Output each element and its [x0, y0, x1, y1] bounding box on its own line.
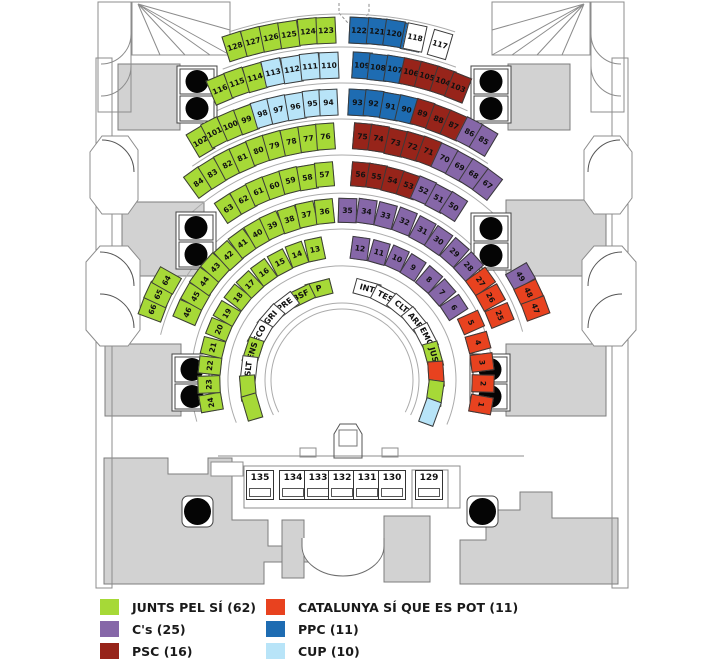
seat-1: 1 [468, 394, 494, 416]
seat-23: 23 [197, 375, 221, 394]
seat-123: 123 [316, 16, 337, 44]
legend-swatch-cs [100, 621, 119, 637]
seat-76: 76 [315, 122, 336, 150]
legend-label: CATALUNYA SÍ QUE ES POT (11) [298, 600, 518, 615]
desk-134: 134 [279, 470, 307, 500]
legend-swatch-psc [100, 643, 119, 659]
legend-item-jxsi: JUNTS PEL SÍ (62) [100, 596, 256, 618]
seat-35: 35 [337, 197, 357, 223]
camera-marker-pair [471, 66, 511, 123]
desk-132: 132 [328, 470, 356, 500]
legend-item-cup: CUP (10) [266, 640, 518, 662]
seat-57: 57 [313, 162, 334, 189]
legend-label: PSC (16) [132, 644, 193, 659]
legend-item-csqep: CATALUNYA SÍ QUE ES POT (11) [266, 596, 518, 618]
legend-item-cs: C's (25) [100, 618, 256, 640]
desk-131: 131 [353, 470, 381, 500]
legend-swatch-csqep [266, 599, 285, 615]
legend-swatch-ppc [266, 621, 285, 637]
legend-label: PPC (11) [298, 622, 359, 637]
parliament-floor-plan: 1281271261251241231221211201191181171161… [0, 0, 722, 663]
seat-22: 22 [197, 355, 222, 375]
legend-label: CUP (10) [298, 644, 360, 659]
camera-marker [467, 496, 498, 527]
desk-135: 135 [246, 470, 274, 500]
legend-label: C's (25) [132, 622, 186, 637]
legend-swatch-jxsi [100, 599, 119, 615]
seat-2: 2 [471, 374, 494, 393]
legend-item-psc: PSC (16) [100, 640, 256, 662]
desk-129: 129 [415, 470, 443, 500]
legend-label: JUNTS PEL SÍ (62) [132, 600, 256, 615]
legend-column-left: JUNTS PEL SÍ (62)C's (25)PSC (16) [100, 596, 256, 662]
seat-94: 94 [319, 88, 339, 116]
seat-3: 3 [469, 352, 494, 373]
seat-36: 36 [314, 198, 336, 225]
seat-110: 110 [318, 51, 339, 79]
legend-item-ppc: PPC (11) [266, 618, 518, 640]
desk-130: 130 [378, 470, 406, 500]
camera-marker [182, 496, 213, 527]
legend-swatch-cup [266, 643, 285, 659]
legend-column-right: CATALUNYA SÍ QUE ES POT (11)PPC (11)CUP … [266, 596, 518, 662]
